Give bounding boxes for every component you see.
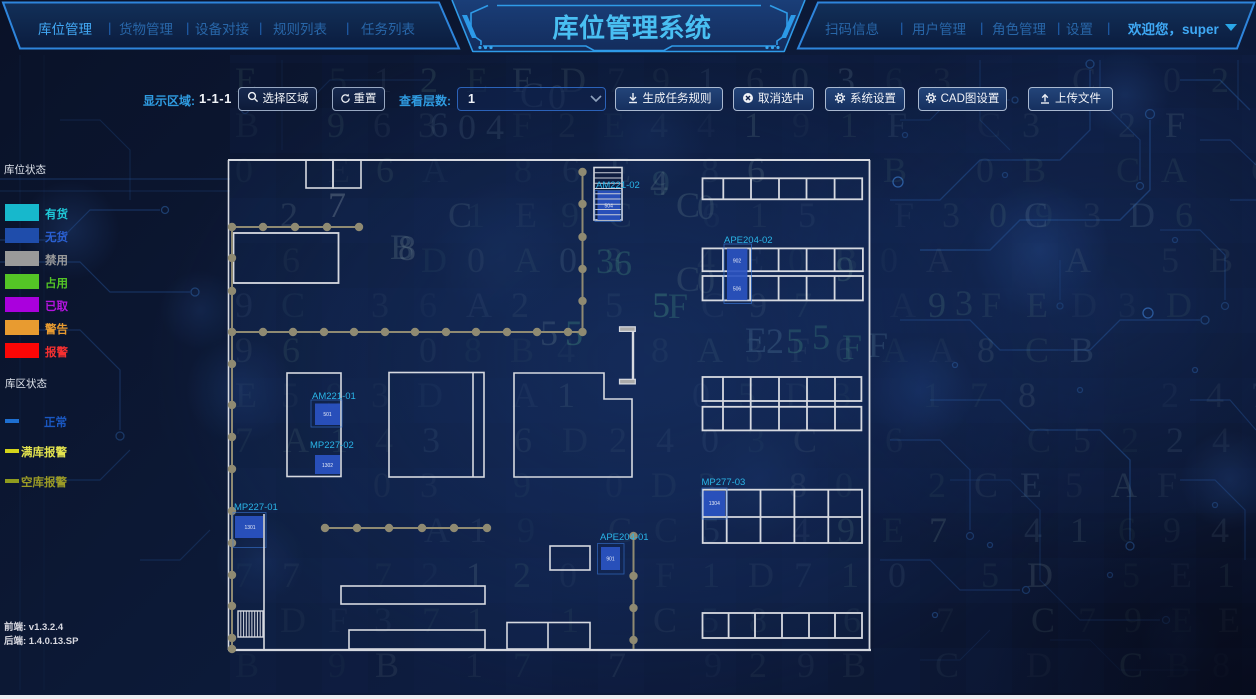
svg-text:MP277-03: MP277-03 [702,477,746,488]
svg-text:MP227-02: MP227-02 [310,440,354,451]
svg-text:AM221-02: AM221-02 [596,180,640,191]
svg-text:506: 506 [733,287,742,293]
svg-text:901: 901 [606,557,615,563]
svg-text:504: 504 [605,204,614,210]
svg-text:1301: 1301 [244,525,255,531]
svg-text:APE204-01: APE204-01 [600,532,649,543]
svg-text:1304: 1304 [709,501,720,507]
svg-text:501: 501 [323,412,332,418]
svg-text:902: 902 [733,259,742,265]
svg-text:MP227-01: MP227-01 [234,502,278,513]
svg-text:1302: 1302 [322,463,333,469]
